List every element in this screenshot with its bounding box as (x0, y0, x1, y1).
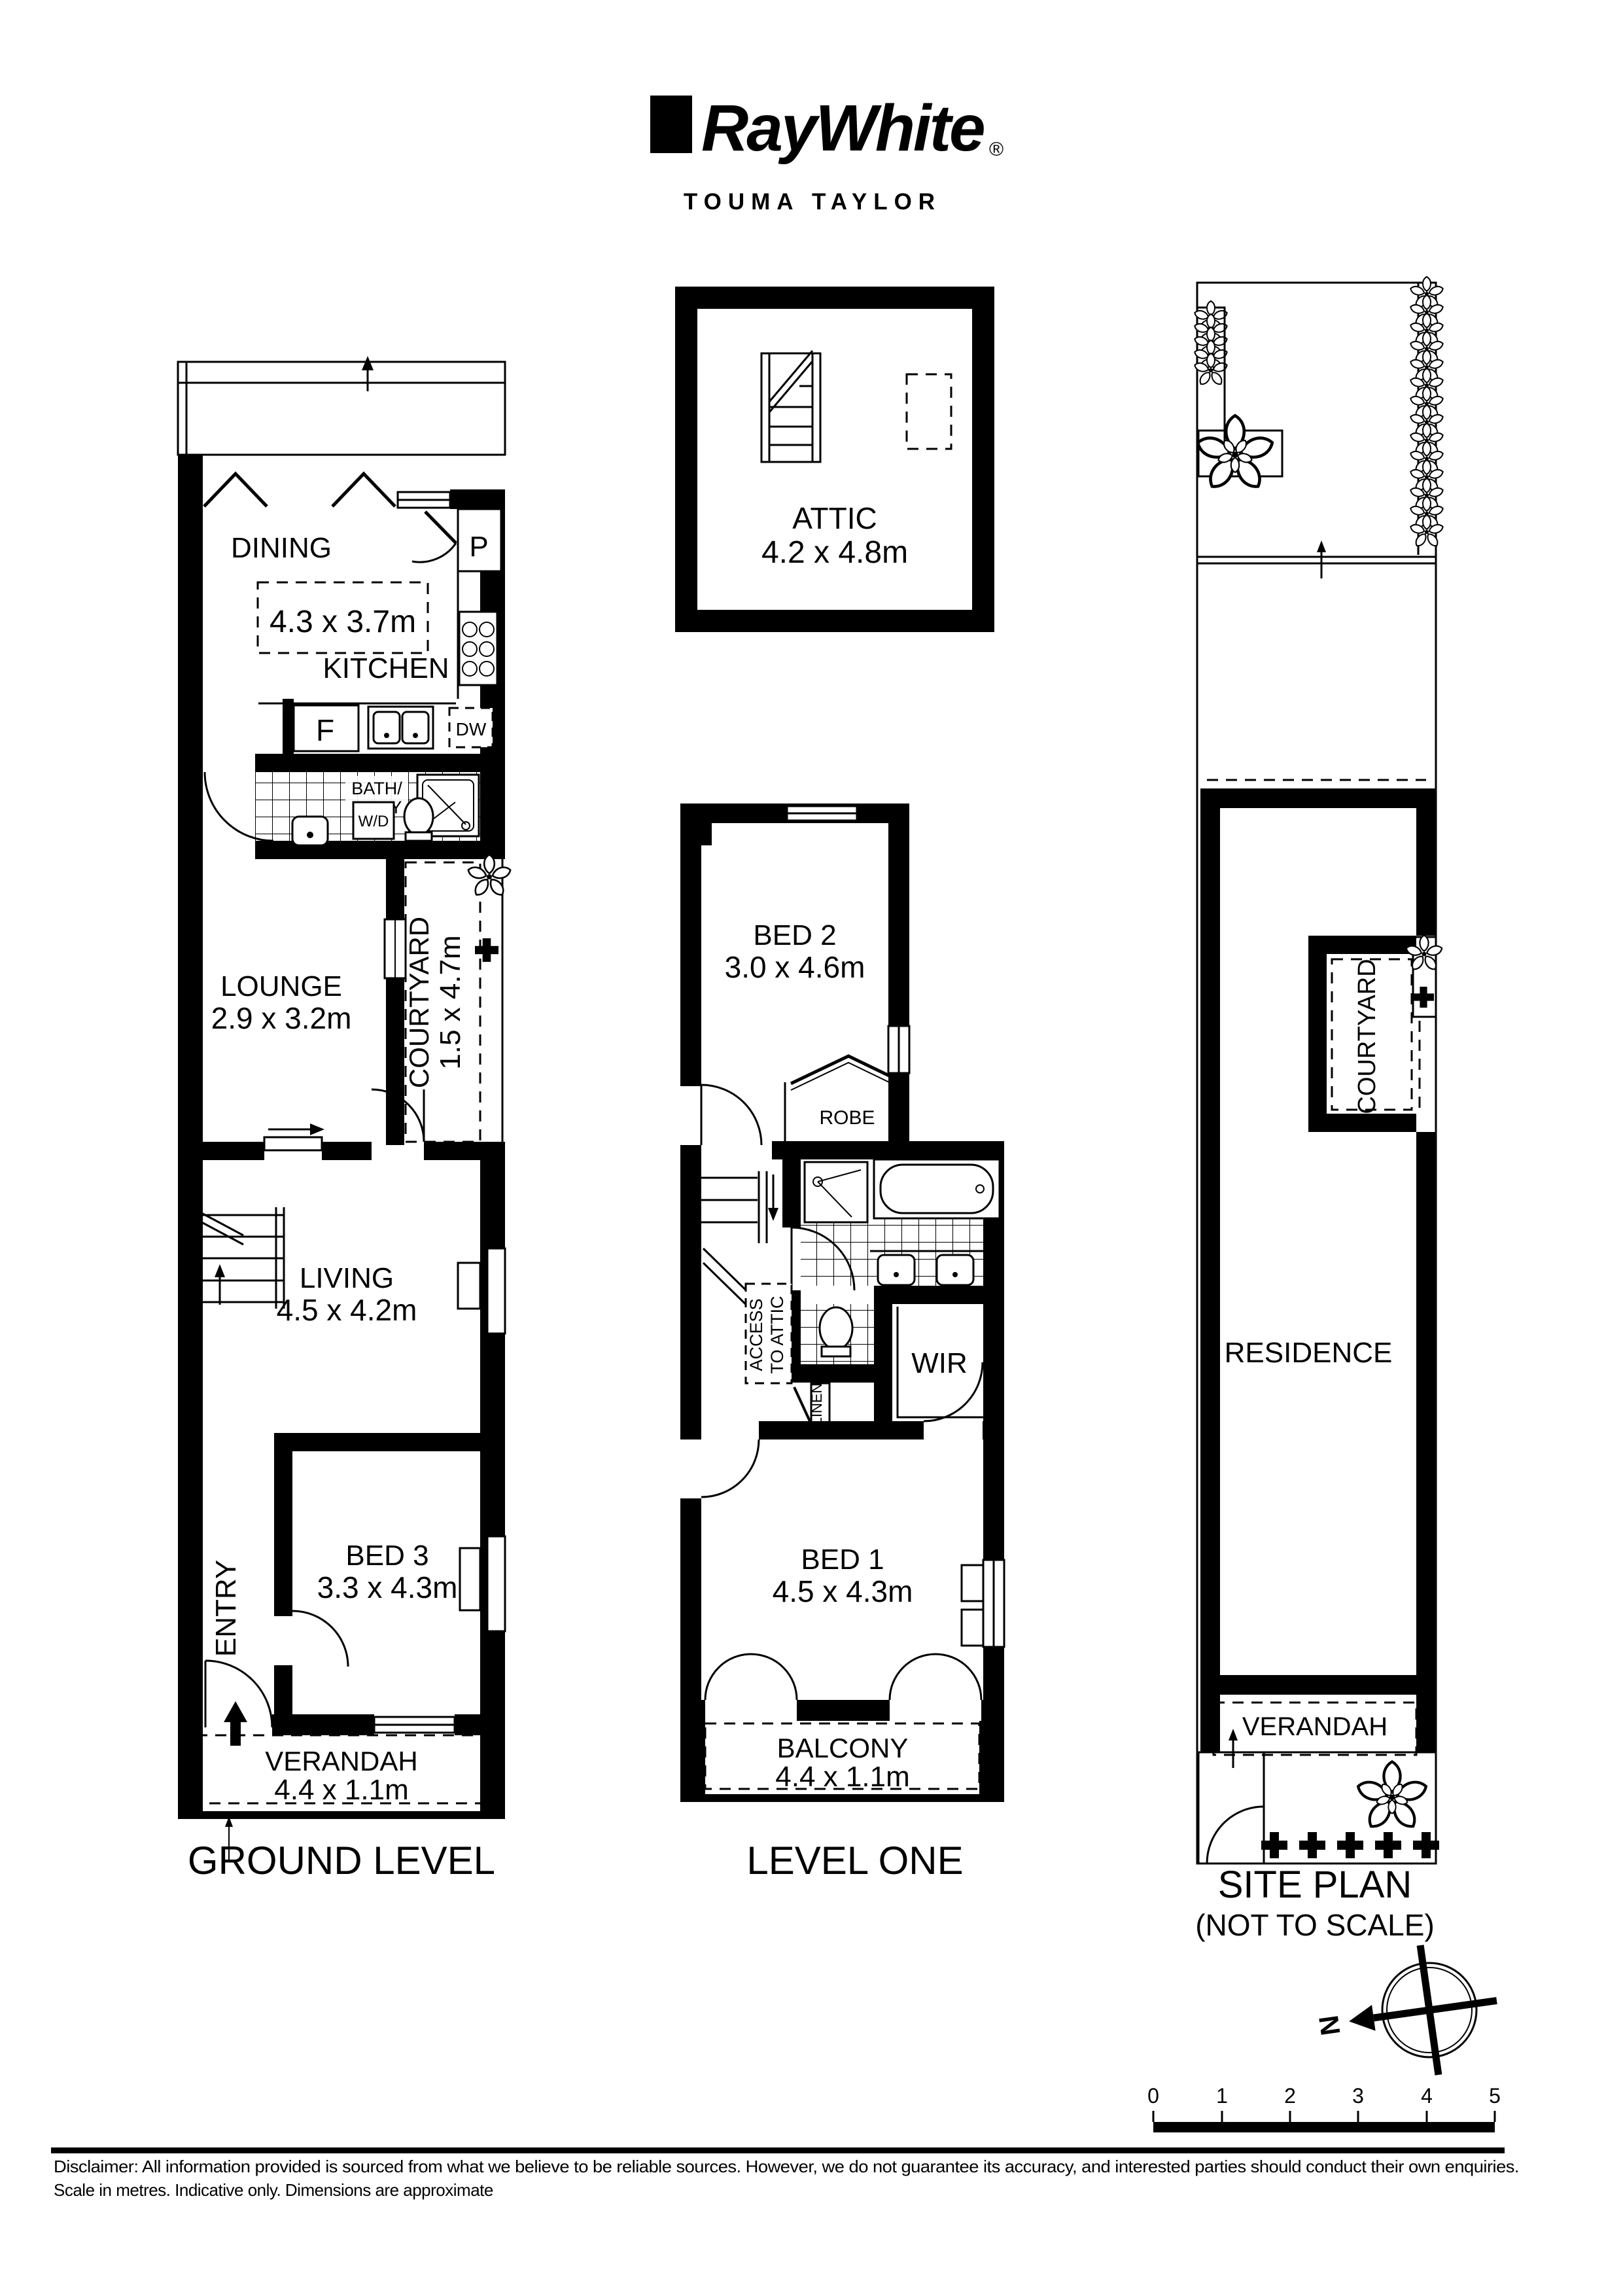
disclaimer-line1: Disclaimer: All information provided is … (54, 2157, 1519, 2176)
bathtub-icon (874, 1159, 1000, 1218)
room-dims-attic: 4.2 x 4.8m (761, 535, 908, 570)
compass-icon: N (1305, 1935, 1506, 2091)
fridge-label: F (316, 713, 334, 747)
room-label-bed3: BED 3 (345, 1540, 428, 1572)
footer-divider (51, 2147, 1505, 2153)
bed2-side-window (888, 1026, 909, 1073)
scale-tick-0: 0 (1147, 2084, 1159, 2108)
level-one-plan: ROBE (680, 804, 1004, 1882)
floorplan-page: RayWhite ® TOUMA TAYLOR (0, 0, 1623, 2296)
shower-icon-l1 (805, 1162, 867, 1222)
bed2-door-arc (701, 1085, 761, 1145)
agency-name: TOUMA TAYLOR (684, 189, 941, 215)
room-label-attic: ATTIC (792, 501, 877, 535)
tree-icon (1195, 415, 1275, 491)
site-verandah-label: VERANDAH (1242, 1712, 1387, 1741)
ground-level-plan: P F DW BATH/ L'D (178, 356, 512, 1882)
north-arrow (1347, 2005, 1375, 2034)
scale-bar: 0 1 2 3 4 5 (1147, 2084, 1501, 2132)
scale-tick-4: 4 (1421, 2084, 1433, 2108)
linen-label: LINEN (809, 1383, 825, 1426)
entry-arrow-icon (224, 1701, 247, 1746)
room-label-living: LIVING (300, 1262, 394, 1294)
tree-icon (1355, 1761, 1429, 1831)
bifold-doors-icon (204, 474, 395, 506)
cooktop-icon (459, 612, 497, 685)
courtyard-window (385, 919, 406, 978)
site-courtyard-label: COURTYARD (1353, 959, 1381, 1114)
room-dims-lounge: 2.9 x 3.2m (211, 1001, 352, 1035)
disclaimer-line2: Scale in metres. Indicative only. Dimens… (54, 2180, 493, 2200)
front-gate-arc (1207, 1807, 1264, 1863)
room-label-lounge: LOUNGE (220, 970, 342, 1002)
wir-label: WIR (911, 1347, 968, 1379)
level-one-title: LEVEL ONE (746, 1839, 963, 1882)
pantry-label: P (469, 531, 488, 563)
floorplan-canvas: RayWhite ® TOUMA TAYLOR (0, 0, 1623, 2296)
step-threshold (264, 1137, 322, 1150)
rear-deck (178, 362, 505, 455)
room-label-verandah: VERANDAH (265, 1746, 417, 1776)
brand-name: RayWhite (701, 92, 984, 165)
brand-logo: RayWhite ® TOUMA TAYLOR (650, 92, 1003, 215)
bed2-top-window (787, 806, 857, 821)
room-dims-dining: 4.3 x 3.7m (270, 605, 416, 639)
shrub-icon (1413, 987, 1434, 1008)
room-dims-bed3: 3.3 x 4.3m (317, 1570, 458, 1604)
basin-icon-1 (878, 1255, 915, 1285)
toilet-icon-l1 (820, 1307, 852, 1356)
room-dims-living: 4.5 x 4.2m (277, 1293, 417, 1327)
room-label-kitchen: KITCHEN (323, 652, 449, 684)
hedge-flowers-right (1409, 277, 1444, 548)
pantry-door (425, 512, 456, 543)
front-shrubs (1261, 1832, 1439, 1858)
flower-icon (466, 855, 512, 898)
ground-level-title: GROUND LEVEL (188, 1839, 495, 1882)
scale-tick-3: 3 (1352, 2084, 1364, 2108)
site-plan-subtitle: (NOT TO SCALE) (1195, 1908, 1435, 1942)
kitchen-sink-icon (368, 707, 433, 749)
attic-plan: ATTIC 4.2 x 4.8m (675, 287, 994, 632)
bath-label-line1: BATH/ (351, 779, 402, 798)
disclaimer: Disclaimer: All information provided is … (51, 2147, 1519, 2200)
site-plan: COURTYARD RESIDENCE VERANDAH SITE PLAN (… (1147, 277, 1506, 2132)
balcony-doors-icon (705, 1654, 981, 1700)
room-dims-courtyard: 1.5 x 4.7m (434, 935, 466, 1069)
north-label: N (1313, 2013, 1346, 2038)
direction-arrow-icon (268, 1123, 324, 1135)
shrub-icon (475, 938, 498, 962)
logo-square-icon (650, 96, 692, 153)
attic-access-line1: ACCESS (746, 1298, 766, 1371)
dishwasher-label: DW (456, 719, 487, 739)
site-plan-title: SITE PLAN (1218, 1863, 1412, 1906)
scale-tick-5: 5 (1489, 2084, 1501, 2108)
room-dims-bed2: 3.0 x 4.6m (725, 950, 865, 984)
room-dims-bed1: 4.5 x 4.3m (773, 1574, 913, 1608)
room-label-entry: ENTRY (210, 1560, 242, 1657)
gate-arrow-icon (1317, 540, 1326, 578)
registered-mark: ® (989, 139, 1003, 160)
kitchen-window (398, 492, 450, 508)
basin-icon-2 (937, 1255, 973, 1285)
bed3-window (374, 1717, 455, 1733)
garden-flowers-left (1193, 301, 1228, 387)
robe-label: ROBE (819, 1107, 875, 1129)
staircase-up-icon (194, 1207, 284, 1309)
path-arrow-icon (1229, 1729, 1238, 1768)
room-dims-verandah: 4.4 x 1.1m (274, 1774, 408, 1806)
basin-icon (292, 817, 328, 845)
site-residence-label: RESIDENCE (1225, 1337, 1393, 1369)
room-label-bed2: BED 2 (753, 919, 836, 951)
scale-tick-1: 1 (1216, 2084, 1228, 2108)
room-label-balcony: BALCONY (777, 1733, 909, 1763)
attic-access-line2: TO ATTIC (767, 1296, 787, 1373)
room-dims-balcony: 4.4 x 1.1m (775, 1761, 909, 1793)
toilet-icon (404, 798, 433, 841)
scale-tick-2: 2 (1284, 2084, 1296, 2108)
room-label-bed1: BED 1 (801, 1544, 884, 1576)
bed1-side-window (962, 1560, 1004, 1647)
washer-label: W/D (358, 813, 389, 830)
room-label-courtyard: COURTYARD (404, 917, 434, 1088)
bed3-door-arc (292, 1611, 348, 1667)
room-label-dining: DINING (231, 532, 332, 564)
bed1-door-arc (701, 1439, 759, 1497)
